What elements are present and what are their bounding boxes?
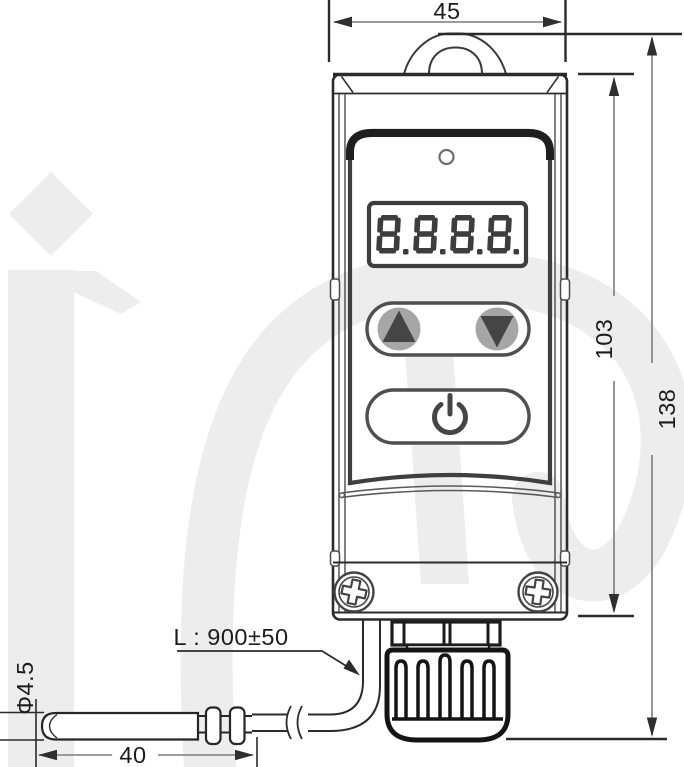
updown-button-group xyxy=(367,303,529,355)
probe-crimp-ridge-2 xyxy=(230,708,245,745)
thermostat-device: 8.8.8.8 xyxy=(42,34,570,745)
cap-bevel-right xyxy=(547,77,559,93)
gland-nut xyxy=(392,622,500,645)
side-notch-left-upper xyxy=(331,279,340,300)
watermark-band xyxy=(404,336,469,584)
side-notch-right-upper xyxy=(561,279,570,300)
side-notch-right-lower xyxy=(561,551,570,566)
probe-crimp-ridge-1 xyxy=(206,708,221,745)
side-notch-left-lower xyxy=(331,551,340,566)
cap-bevel-left xyxy=(342,77,354,93)
screw-left xyxy=(335,573,374,612)
technical-drawing: 8.8.8.8 xyxy=(0,0,684,767)
down-button[interactable] xyxy=(476,308,519,351)
cable-bend-outer xyxy=(316,620,363,715)
drawing-svg: 8.8.8.8 xyxy=(0,0,684,767)
cable-gland xyxy=(387,622,508,740)
dim-probe-diameter-label: Φ4.5 xyxy=(12,661,38,714)
watermark-diamond xyxy=(9,172,93,256)
screw-right xyxy=(519,573,558,612)
cable-left-segment xyxy=(252,715,316,732)
dim-width-45: 45 xyxy=(329,0,566,62)
dim-cable-length-label: L : 900±50 xyxy=(173,624,288,650)
dim-width-label: 45 xyxy=(433,0,460,24)
power-button[interactable] xyxy=(367,390,529,443)
mounting-hanger xyxy=(404,34,506,75)
cable-break-marks xyxy=(287,706,303,739)
dim-total-height-label: 138 xyxy=(654,389,680,430)
dim-probe-length-label: 40 xyxy=(119,742,146,767)
leader-arrowhead xyxy=(344,660,361,676)
dim-front-height-label: 103 xyxy=(591,319,617,360)
led-indicator xyxy=(440,150,454,164)
sensor-probe xyxy=(42,708,252,745)
seven-segment-display: 8.8.8.8 xyxy=(369,203,526,266)
dimension-annotations: 45 103 138 40 Φ4.5 xyxy=(0,0,682,767)
probe-body xyxy=(42,713,198,740)
hanger-outer xyxy=(404,34,506,75)
hanger-hole xyxy=(429,48,482,75)
up-button[interactable] xyxy=(378,308,421,351)
